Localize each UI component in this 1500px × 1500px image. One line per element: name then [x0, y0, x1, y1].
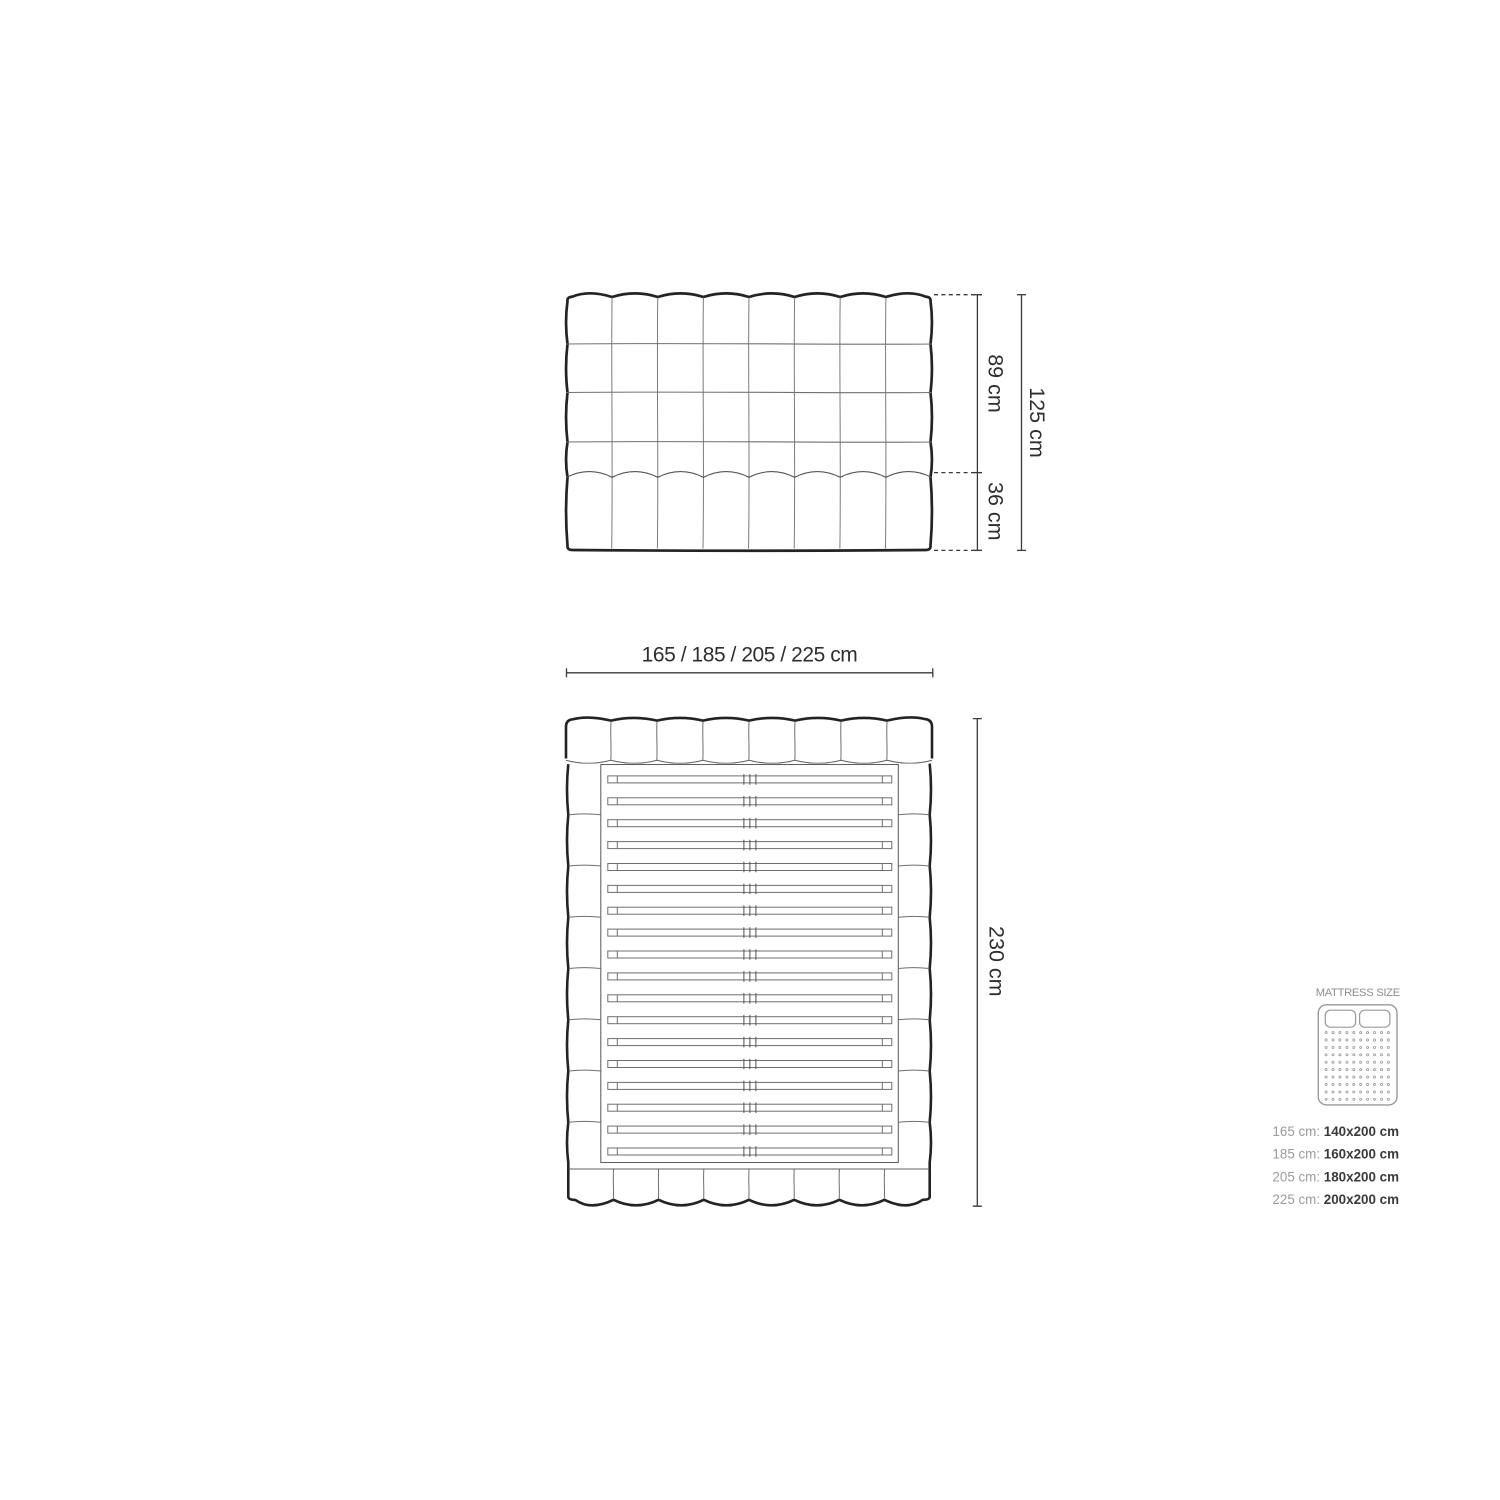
svg-text:36 cm: 36 cm [984, 482, 1008, 541]
svg-text:205 cm: 180x200 cm: 205 cm: 180x200 cm [1272, 1169, 1399, 1184]
svg-text:125 cm: 125 cm [1025, 387, 1049, 458]
svg-text:165 cm: 140x200 cm: 165 cm: 140x200 cm [1272, 1124, 1399, 1139]
svg-text:225 cm: 200x200 cm: 225 cm: 200x200 cm [1272, 1192, 1399, 1207]
svg-text:230 cm: 230 cm [984, 926, 1008, 997]
svg-text:185 cm: 160x200 cm: 185 cm: 160x200 cm [1272, 1147, 1399, 1162]
svg-text:165 / 185 / 205 / 225 cm: 165 / 185 / 205 / 225 cm [642, 644, 858, 667]
svg-text:89 cm: 89 cm [984, 354, 1008, 413]
svg-text:MATTRESS SIZE: MATTRESS SIZE [1316, 987, 1400, 999]
